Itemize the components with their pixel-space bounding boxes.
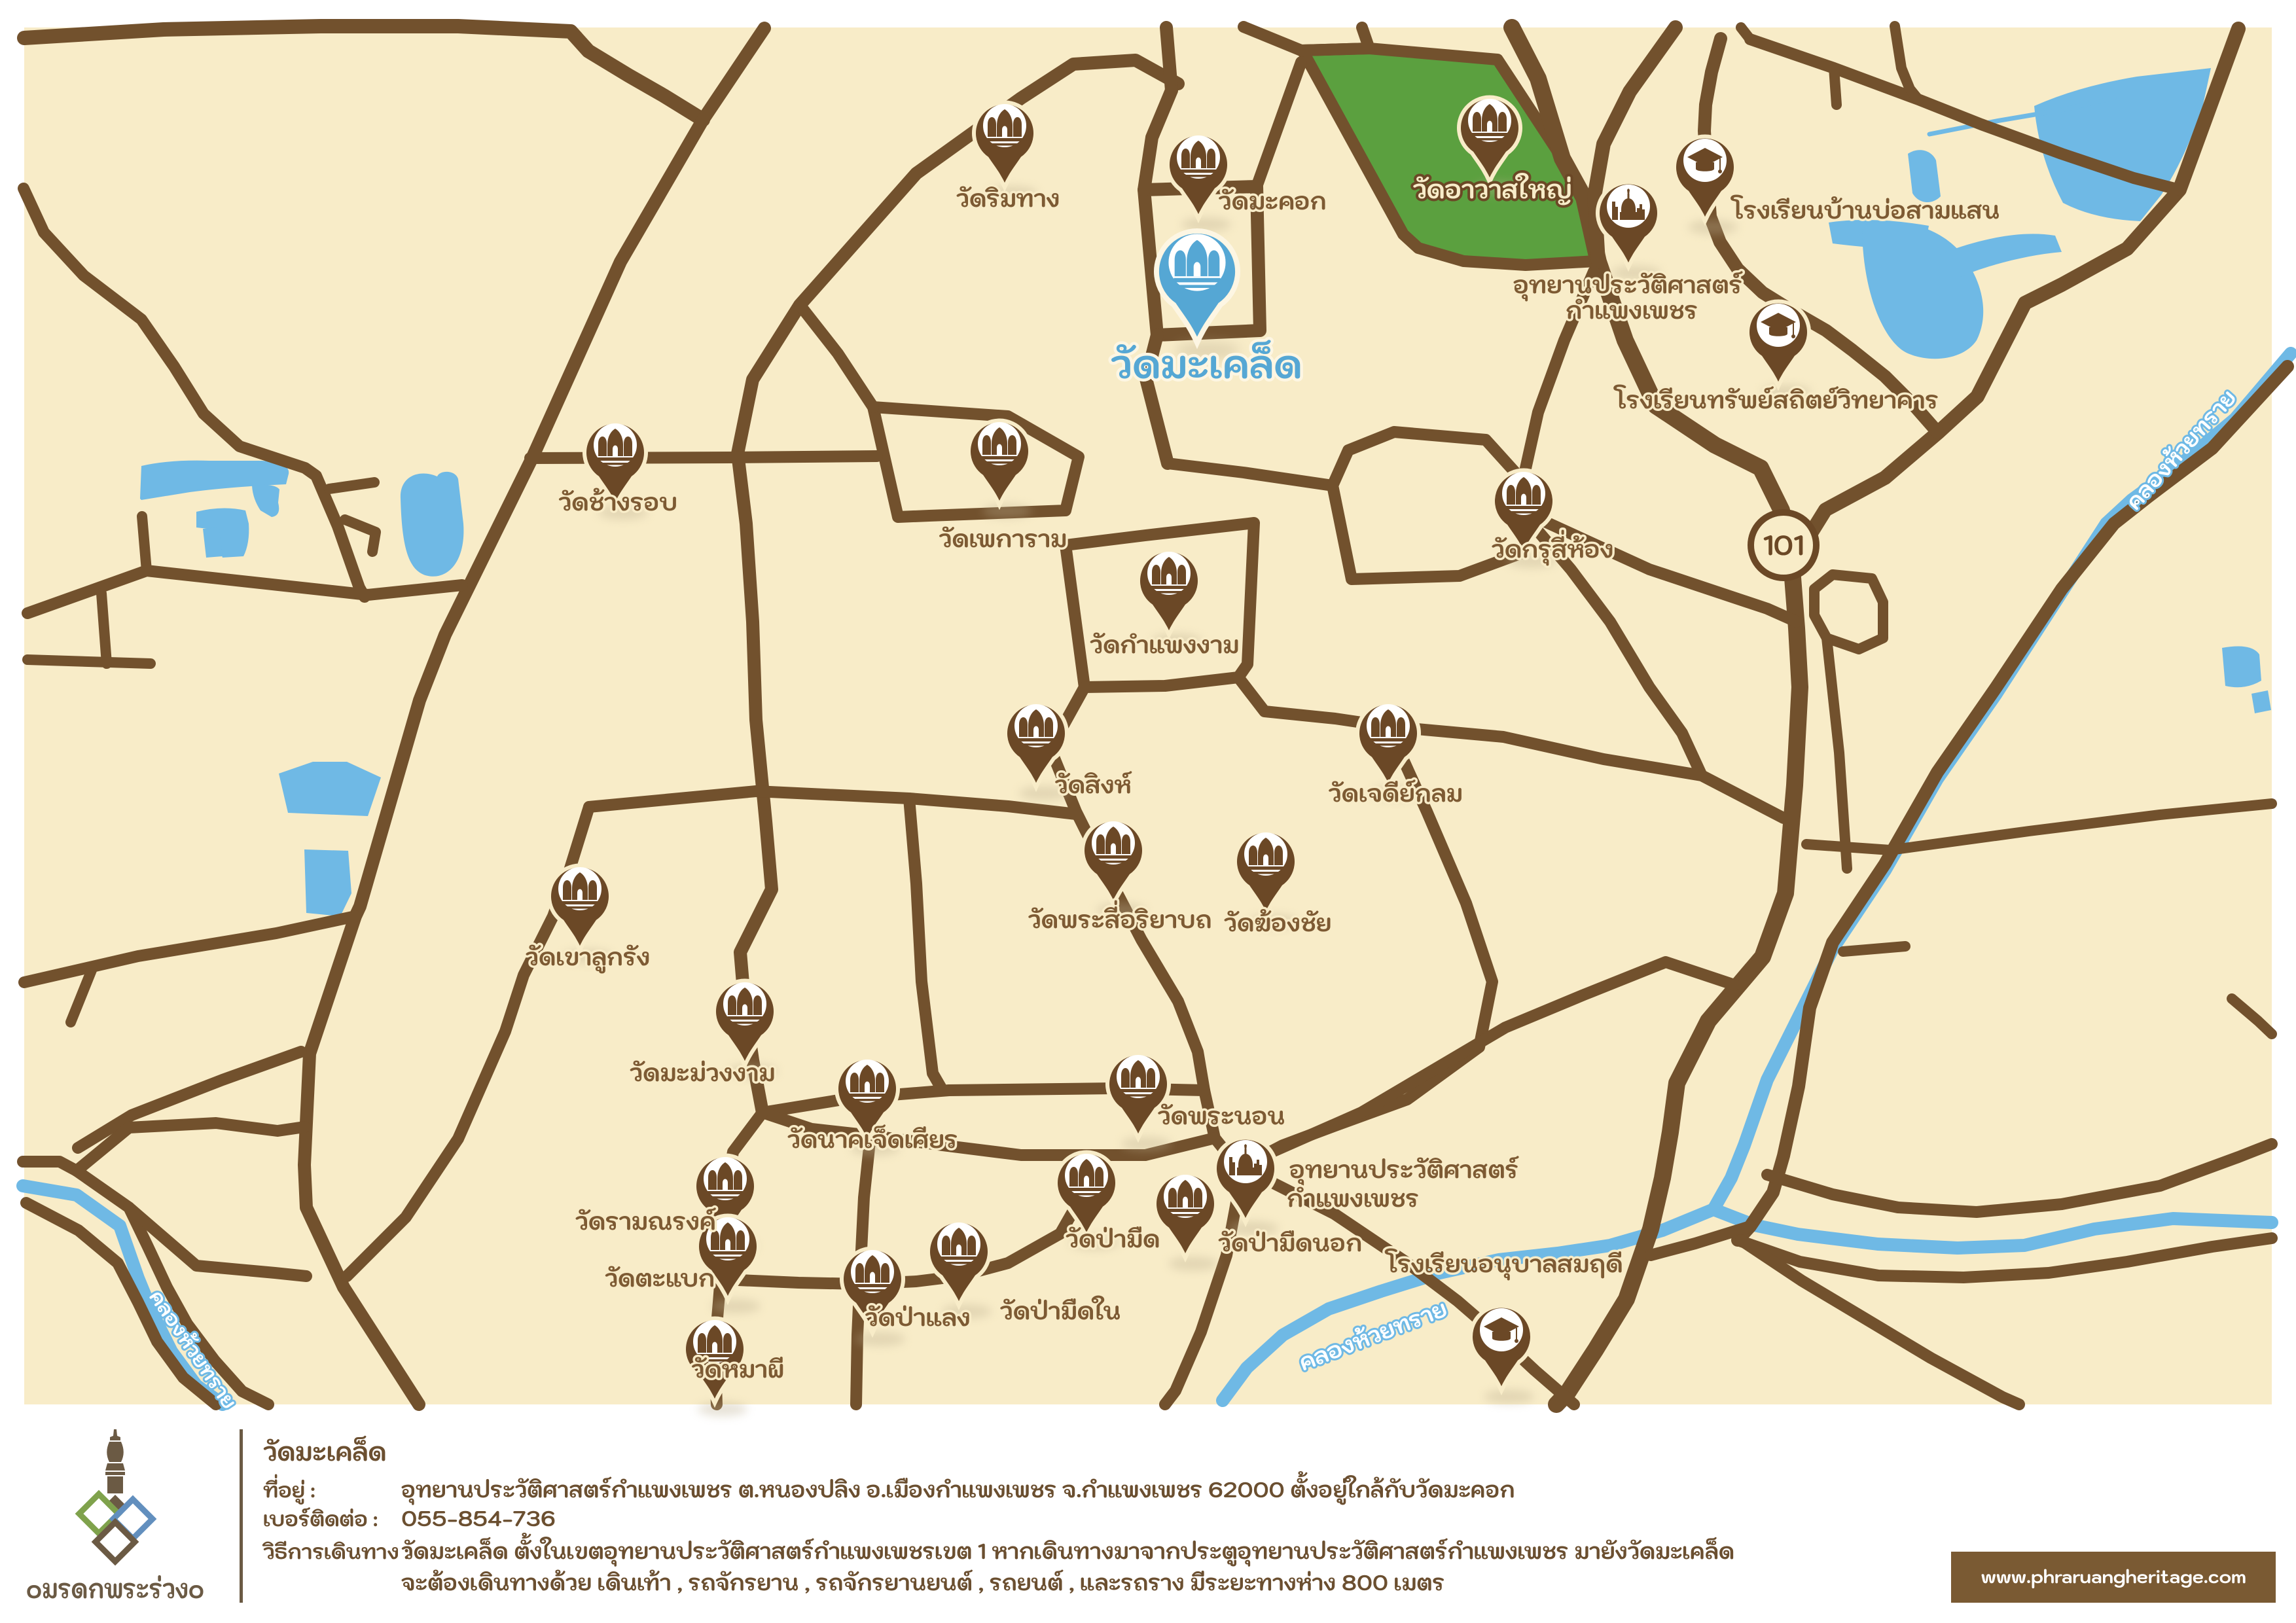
svg-text:โรงเรียนทรัพย์สถิตย์วิทยาคาร: โรงเรียนทรัพย์สถิตย์วิทยาคาร [1613,384,1939,415]
svg-text:๐มรดกพระร่วง๐: ๐มรดกพระร่วง๐ [26,1572,204,1606]
svg-text:055-854-736: 055-854-736 [401,1505,556,1533]
svg-text:วัดป่าแลง: วัดป่าแลง [865,1302,970,1332]
svg-text:วัดป่ามืดใน: วัดป่ามืดใน [1000,1295,1121,1326]
svg-text:วัดเพการาม: วัดเพการาม [939,523,1067,554]
svg-text:วัดตะแบก: วัดตะแบก [605,1262,715,1293]
svg-text:โรงเรียนบ้านบ่อสามแสน: โรงเรียนบ้านบ่อสามแสน [1731,194,2000,225]
svg-text:วัดฆ้องชัย: วัดฆ้องชัย [1224,907,1331,938]
svg-text:วัดเขาลูกรัง: วัดเขาลูกรัง [526,941,650,974]
svg-text:วัดริมทาง: วัดริมทาง [956,183,1060,213]
svg-text:วัดป่ามืด: วัดป่ามืด [1066,1223,1160,1254]
svg-text:วัดอาวาสใหญ่: วัดอาวาสใหญ่ [1412,173,1571,205]
svg-text:อุทยานประวัติศาสตร์: อุทยานประวัติศาสตร์ [1289,1154,1519,1186]
svg-text:วัดมะม่วงงาม: วัดมะม่วงงาม [630,1057,775,1088]
svg-text:วัดรามณรงค์: วัดรามณรงค์ [575,1205,716,1236]
svg-text:www.phraruangheritage.com: www.phraruangheritage.com [1981,1564,2246,1588]
svg-text:วัดพระสี่อริยาบถ: วัดพระสี่อริยาบถ [1028,900,1211,935]
svg-text:วัดมะเคล็ด: วัดมะเคล็ด [263,1436,386,1468]
svg-text:วัดมะเคล็ด: วัดมะเคล็ด [1111,339,1302,389]
svg-text:ที่อยู่ :: ที่อยู่ : [263,1473,315,1505]
svg-text:วัดกรุสี่ห้อง: วัดกรุสี่ห้อง [1492,529,1614,566]
svg-text:วัดเจดีย์กลม: วัดเจดีย์กลม [1328,777,1462,808]
svg-text:วัดกำแพงงาม: วัดกำแพงงาม [1090,629,1239,660]
svg-text:วัดพระนอน: วัดพระนอน [1157,1100,1285,1131]
svg-text:วัดหมาผี: วัดหมาผี [691,1353,783,1384]
svg-text:วัดช้างรอบ: วัดช้างรอบ [558,486,677,517]
svg-text:วิธีการเดินทาง :: วิธีการเดินทาง : [262,1538,409,1565]
svg-text:กำแพงเพชร: กำแพงเพชร [1566,294,1698,325]
svg-text:วัดป่ามืดนอก: วัดป่ามืดนอก [1218,1227,1362,1258]
svg-text:วัดนาคเจ็ดเศียร: วัดนาคเจ็ดเศียร [787,1124,958,1154]
svg-text:กำแพงเพชร: กำแพงเพชร [1287,1183,1419,1213]
svg-text:เบอร์ติดต่อ :: เบอร์ติดต่อ : [263,1505,378,1532]
svg-text:จะต้องเดินทางด้วย เดินเท้า , ร: จะต้องเดินทางด้วย เดินเท้า , รถจักรยาน ,… [401,1569,1444,1597]
svg-text:โรงเรียนอนุบาลสมฤดี: โรงเรียนอนุบาลสมฤดี [1385,1248,1623,1281]
svg-text:วัดสิงห์: วัดสิงห์ [1054,769,1132,800]
svg-text:วัดมะคอก: วัดมะคอก [1218,185,1326,216]
svg-text:101: 101 [1763,527,1804,563]
